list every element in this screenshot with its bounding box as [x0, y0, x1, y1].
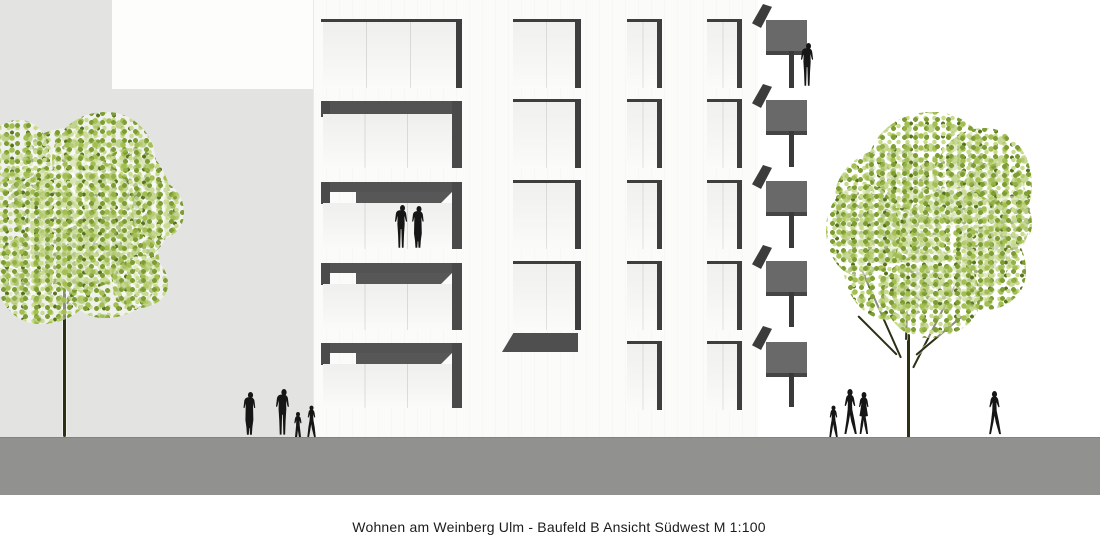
person-loggia-1 [395, 203, 410, 250]
tree-right-foliage [826, 184, 900, 276]
loggia-band [321, 343, 462, 353]
window-glazing [707, 264, 737, 330]
background-white-block [112, 0, 314, 89]
person-right-group-adult-2 [856, 392, 872, 437]
person-left-sidewalk-toddler [293, 412, 303, 437]
person-balcony [801, 42, 816, 88]
loggia-pier [452, 182, 462, 249]
drawing-caption: Wohnen am Weinberg Ulm - Baufeld B Ansic… [0, 519, 1100, 535]
window-glazing [513, 102, 575, 168]
window-frame-side [737, 341, 742, 410]
loggia-glazing [323, 203, 452, 249]
window-glazing [707, 102, 737, 168]
balcony-post [789, 212, 794, 248]
person-loggia-2 [411, 206, 427, 250]
window-glazing [627, 183, 657, 249]
loggia-band-stub [321, 343, 330, 365]
balcony-post [789, 373, 794, 407]
window-glazing [627, 102, 657, 168]
person-right-group-child [828, 404, 839, 437]
loggia-band-stub [321, 182, 330, 204]
loggia-band [321, 101, 462, 114]
window-glazing [707, 183, 737, 249]
window-frame-side [657, 180, 662, 249]
person-right-walker [986, 391, 1003, 437]
loggia-band-stub [321, 263, 330, 285]
loggia-pier [452, 101, 462, 168]
balcony-parapet [766, 181, 807, 216]
person-left-sidewalk-child [306, 403, 317, 437]
window-frame-side [575, 180, 581, 249]
person-left-sidewalk-1 [243, 384, 258, 437]
window-glazing [627, 22, 657, 88]
loggia-pier [452, 263, 462, 330]
loggia-glazing [323, 284, 452, 330]
tree-right-foliage [988, 196, 1032, 248]
window-frame-side [737, 99, 742, 168]
tree-left-foliage [132, 182, 184, 240]
window-frame-side [575, 261, 581, 330]
loggia-glazing [323, 22, 456, 88]
window-frame-side [657, 19, 662, 88]
window-frame-side [575, 19, 581, 88]
balcony-post [789, 292, 794, 327]
window-glazing [513, 183, 575, 249]
loggia-glazing [323, 364, 452, 408]
window-glazing [513, 22, 575, 88]
window-frame-side [657, 99, 662, 168]
entrance-canopy [502, 333, 578, 352]
loggia-band [321, 182, 462, 192]
person-left-sidewalk-2 [276, 382, 292, 437]
window-glazing [707, 22, 737, 88]
tree-right-foliage [884, 252, 980, 338]
ground-strip [0, 437, 1100, 495]
window-glazing [513, 264, 575, 330]
window-glazing [627, 344, 657, 410]
loggia-pier [452, 343, 462, 408]
loggia-frame-side [456, 19, 462, 88]
balcony-parapet [766, 261, 807, 296]
window-frame-side [657, 341, 662, 410]
window-frame-side [737, 261, 742, 330]
window-frame-side [657, 261, 662, 330]
balcony-parapet [766, 100, 807, 135]
elevation-drawing: Wohnen am Weinberg Ulm - Baufeld B Ansic… [0, 0, 1100, 550]
window-frame-side [737, 19, 742, 88]
balcony-parapet [766, 342, 807, 377]
tree-left-foliage [112, 256, 168, 308]
tree-right-branch [907, 334, 910, 438]
window-glazing [707, 344, 737, 410]
window-frame-side [737, 180, 742, 249]
balcony-post [789, 51, 794, 88]
window-glazing [627, 264, 657, 330]
loggia-band [321, 263, 462, 273]
window-frame-side [575, 99, 581, 168]
loggia-glazing [323, 114, 452, 168]
balcony-post [789, 131, 794, 167]
